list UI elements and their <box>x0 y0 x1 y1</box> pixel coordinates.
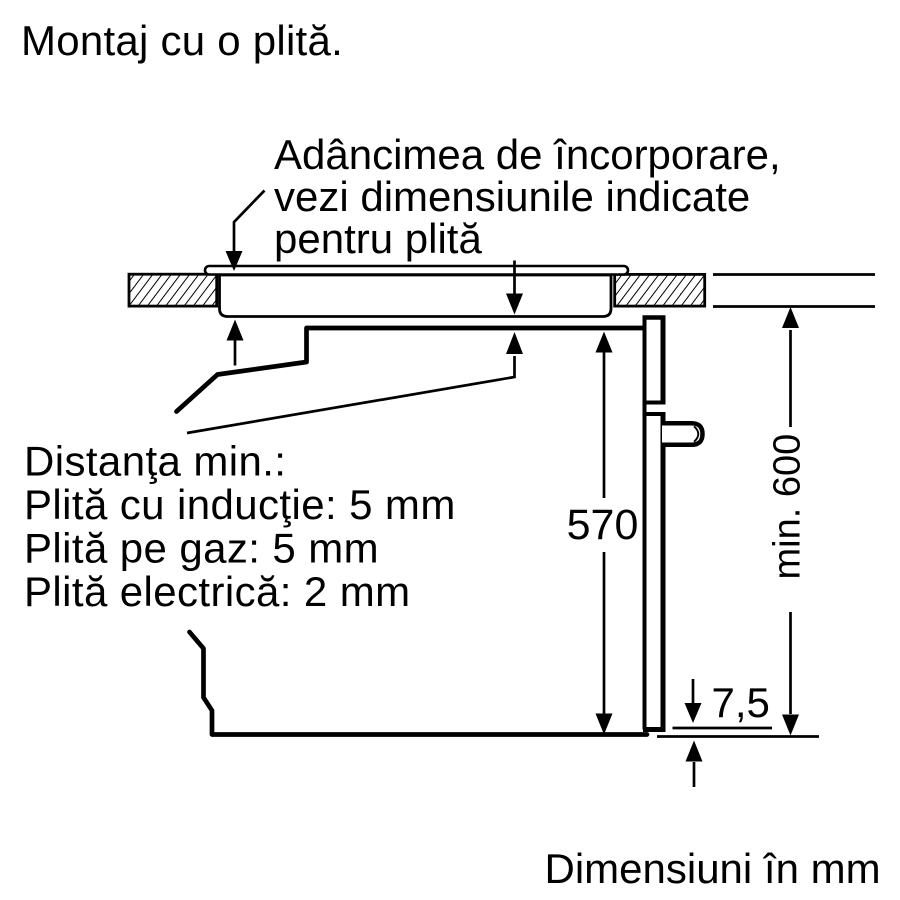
svg-text:Plită cu inducţie: 5 mm: Plită cu inducţie: 5 mm <box>24 481 456 528</box>
svg-text:pentru plită: pentru plită <box>274 215 482 262</box>
svg-text:Montaj cu o plită.: Montaj cu o plită. <box>21 17 343 64</box>
svg-text:min. 600: min. 600 <box>767 434 809 580</box>
svg-text:Adâncimea de încorporare,: Adâncimea de încorporare, <box>274 131 781 178</box>
svg-text:Dimensiuni în mm: Dimensiuni în mm <box>545 845 881 892</box>
svg-text:Plită electrică: 2 mm: Plită electrică: 2 mm <box>24 568 411 615</box>
svg-text:Plită pe gaz: 5 mm: Plită pe gaz: 5 mm <box>24 525 379 572</box>
svg-text:vezi dimensiunile indicate: vezi dimensiunile indicate <box>274 173 750 220</box>
svg-text:570: 570 <box>567 501 639 549</box>
svg-text:Distanţa min.:: Distanţa min.: <box>24 438 286 485</box>
svg-text:7,5: 7,5 <box>712 679 770 726</box>
